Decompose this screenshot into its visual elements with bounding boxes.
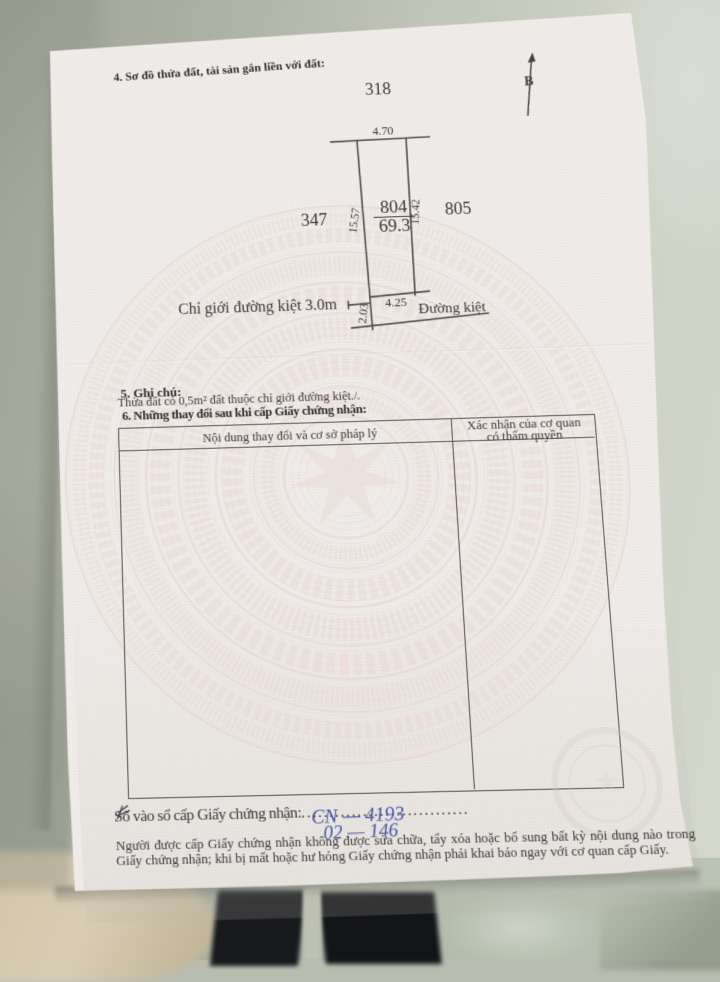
svg-text:Đường kiệt: Đường kiệt: [418, 299, 486, 317]
svg-text:69.3: 69.3: [378, 215, 411, 235]
svg-text:805: 805: [444, 199, 472, 219]
svg-text:2.03: 2.03: [356, 302, 371, 324]
svg-text:4.25: 4.25: [385, 297, 408, 310]
svg-text:15.57: 15.57: [347, 207, 363, 234]
svg-text:804: 804: [379, 197, 408, 217]
svg-text:347: 347: [300, 210, 327, 230]
svg-text:B: B: [524, 74, 534, 88]
svg-text:15.42: 15.42: [409, 199, 423, 225]
svg-text:4.70: 4.70: [372, 126, 394, 139]
